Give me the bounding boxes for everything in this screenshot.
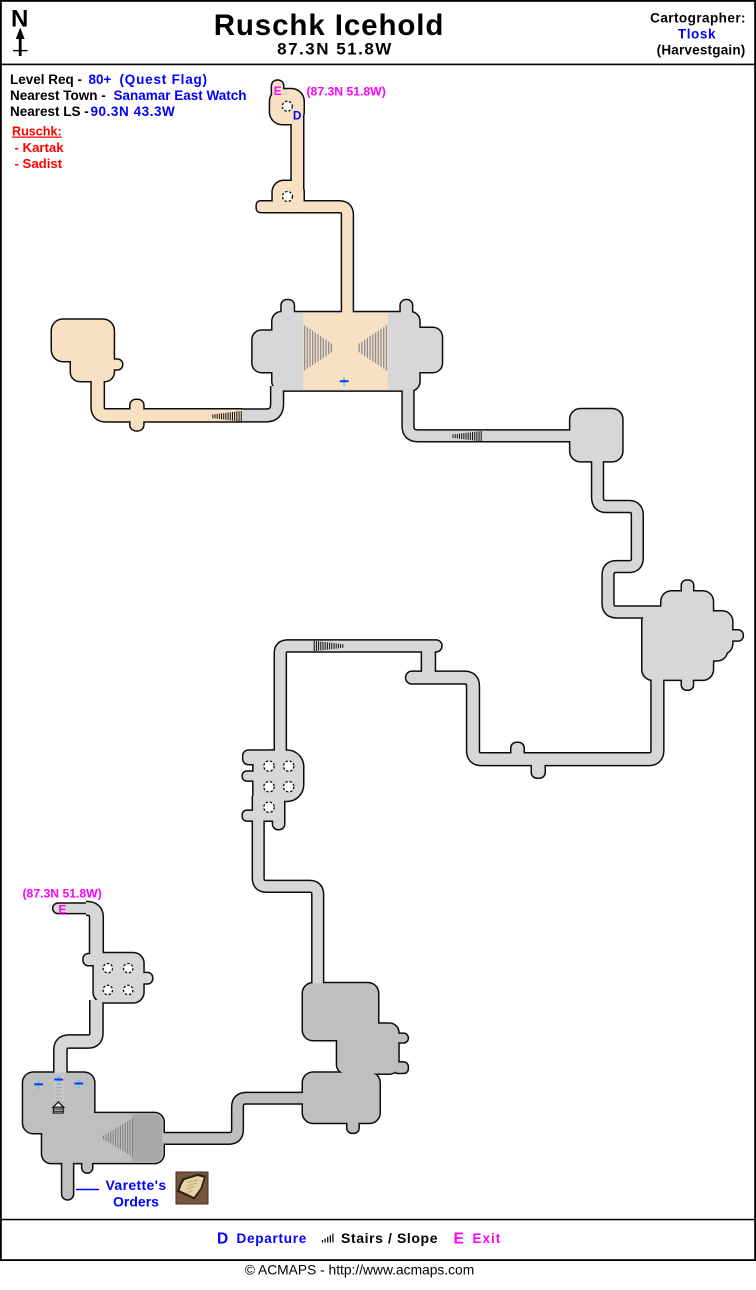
svg-text:Nearest Town -: Nearest Town - <box>10 88 106 103</box>
svg-text:Ruschk Icehold: Ruschk Icehold <box>214 9 445 42</box>
svg-text:N: N <box>11 6 28 33</box>
svg-text:90.3N 43.3W: 90.3N 43.3W <box>91 104 176 119</box>
svg-text:87.3N 51.8W: 87.3N 51.8W <box>277 40 393 59</box>
svg-text:- Kartak: - Kartak <box>15 140 65 155</box>
svg-text:D: D <box>217 1231 228 1248</box>
svg-text:E: E <box>274 84 282 98</box>
svg-text:Orders: Orders <box>113 1194 159 1210</box>
svg-text:© ACMAPS - http://www.acmaps.c: © ACMAPS - http://www.acmaps.com <box>245 1263 474 1278</box>
svg-text:(Quest Flag): (Quest Flag) <box>120 72 208 87</box>
svg-text:(87.3N 51.8W): (87.3N 51.8W) <box>307 85 386 99</box>
svg-text:D: D <box>293 109 302 123</box>
svg-text:Exit: Exit <box>473 1231 502 1246</box>
svg-text:E: E <box>454 1231 464 1248</box>
svg-text:Tlosk: Tlosk <box>678 26 716 41</box>
svg-text:Sanamar East Watch: Sanamar East Watch <box>114 88 247 103</box>
svg-text:Stairs / Slope: Stairs / Slope <box>341 1230 438 1246</box>
svg-text:Nearest LS -: Nearest LS - <box>10 104 89 119</box>
svg-text:- Sadist: - Sadist <box>15 156 63 171</box>
svg-text:Ruschk:: Ruschk: <box>12 125 62 139</box>
svg-text:(Harvestgain): (Harvestgain) <box>657 42 746 57</box>
svg-text:Cartographer:: Cartographer: <box>650 10 746 25</box>
svg-text:E: E <box>59 902 67 916</box>
svg-text:(87.3N 51.8W): (87.3N 51.8W) <box>23 887 102 901</box>
svg-text:Varette's: Varette's <box>106 1177 167 1193</box>
svg-text:Level Req -: Level Req - <box>10 72 82 87</box>
svg-text:80+: 80+ <box>89 72 112 87</box>
svg-text:Departure: Departure <box>237 1231 308 1246</box>
